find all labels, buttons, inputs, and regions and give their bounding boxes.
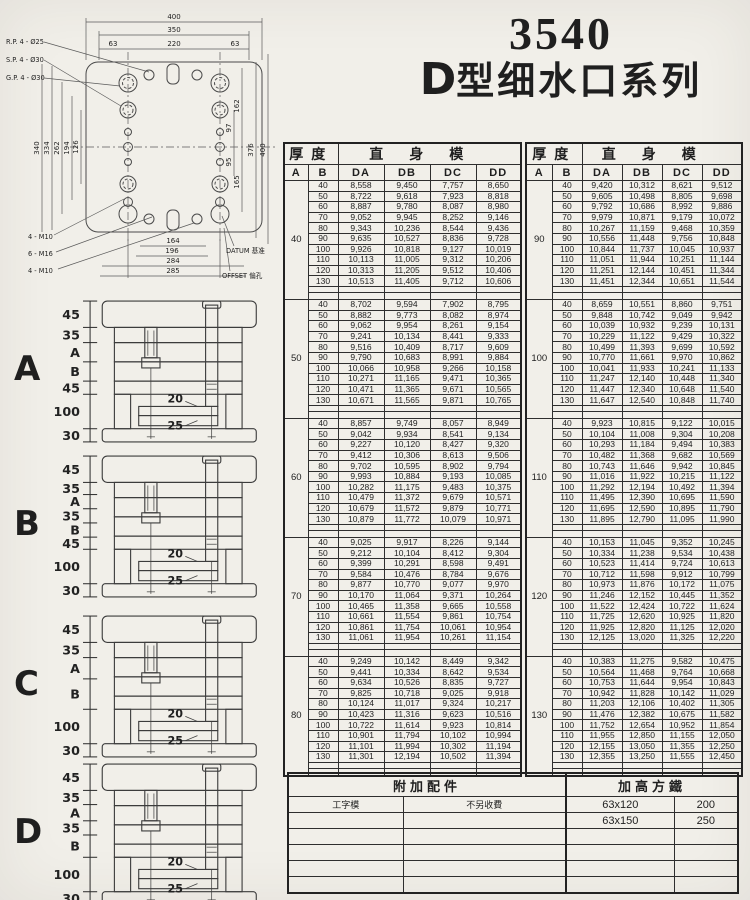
value-cell: 9,728 <box>476 233 521 244</box>
table-row: 10010,72211,6149,92310,814 <box>284 720 521 731</box>
dim-label: 194 <box>63 141 71 155</box>
value-cell: 9,790 <box>338 352 384 363</box>
stack-dim-label: 45 <box>62 380 80 395</box>
value-cell: 11,358 <box>384 601 430 612</box>
value-cell: 11,340 <box>702 374 742 385</box>
value-cell: 11,184 <box>622 440 662 451</box>
thickness-b-cell: 90 <box>308 352 338 363</box>
value-cell: 13,050 <box>622 741 662 752</box>
value-cell: 10,465 <box>338 601 384 612</box>
value-cell: 9,970 <box>662 352 702 363</box>
table-row: 9011,01611,92210,21511,122 <box>526 471 742 482</box>
value-cell: 10,015 <box>702 418 742 429</box>
accessories-row <box>288 877 738 894</box>
thickness-b-cell: 130 <box>552 633 582 644</box>
value-cell: 9,605 <box>582 191 622 202</box>
value-cell: 13,020 <box>622 633 662 644</box>
table-row: 13011,89512,79011,09511,990 <box>526 514 742 525</box>
table-row: 100408,65910,5518,8609,751 <box>526 299 742 310</box>
stack-dim-label: B <box>70 364 80 379</box>
value-cell: 9,429 <box>662 331 702 342</box>
table-row: 11011,49512,39010,69511,590 <box>526 493 742 504</box>
table-row: 508,8829,7738,0828,974 <box>284 310 521 321</box>
stack-dim-label: 45 <box>62 307 80 322</box>
value-cell: 10,406 <box>476 265 521 276</box>
table-row: 50408,7029,5947,9028,795 <box>284 299 521 310</box>
value-cell: 11,344 <box>702 265 742 276</box>
thickness-b-cell: 120 <box>308 741 338 752</box>
value-cell: 8,598 <box>430 559 476 570</box>
value-cell: 10,523 <box>582 559 622 570</box>
stack-dim-label: B <box>70 839 80 854</box>
value-cell: 10,261 <box>430 633 476 644</box>
thickness-b-cell: 70 <box>552 212 582 223</box>
thickness-b-cell: 70 <box>552 688 582 699</box>
value-cell: 9,825 <box>338 688 384 699</box>
value-cell: 11,565 <box>384 395 430 406</box>
value-cell: 10,771 <box>476 503 521 514</box>
value-cell: 11,944 <box>622 255 662 266</box>
thickness-b-cell: 90 <box>308 233 338 244</box>
thickness-b-cell: 80 <box>308 699 338 710</box>
value-cell: 12,344 <box>622 276 662 287</box>
stack-dim-label: A <box>70 661 80 676</box>
straight-mold-header: 直身模 <box>338 143 521 165</box>
series-title: D型细水口系列 <box>378 58 744 104</box>
thickness-b-cell: 80 <box>552 342 582 353</box>
thickness-b-cell: 110 <box>308 730 338 741</box>
empty-cell <box>566 845 674 861</box>
table-row: 709,82510,7189,0259,918 <box>284 688 521 699</box>
value-cell: 9,634 <box>338 677 384 688</box>
value-cell: 11,292 <box>582 482 622 493</box>
value-cell: 10,651 <box>662 276 702 287</box>
value-cell: 12,194 <box>384 752 430 763</box>
value-cell: 9,584 <box>338 569 384 580</box>
value-cell: 11,624 <box>702 601 742 612</box>
value-cell: 10,271 <box>338 374 384 385</box>
value-cell: 10,754 <box>476 611 521 622</box>
accessories-header: 附加配件 <box>288 773 566 797</box>
thickness-b-cell: 90 <box>552 233 582 244</box>
inner-dim-20: 20 <box>167 547 183 560</box>
inner-dim-25: 25 <box>167 883 182 896</box>
thickness-b-cell: 130 <box>552 395 582 406</box>
dim-label: 284 <box>166 257 180 265</box>
value-cell: 11,016 <box>582 471 622 482</box>
value-cell: 8,805 <box>662 191 702 202</box>
value-cell: 9,918 <box>476 688 521 699</box>
value-cell: 8,087 <box>430 202 476 213</box>
value-cell: 9,025 <box>430 688 476 699</box>
accessories-cell: 不另收費 <box>403 797 566 813</box>
col-header-dd: DD <box>476 165 521 181</box>
value-cell: 12,340 <box>622 384 662 395</box>
value-cell: 11,203 <box>582 699 622 710</box>
inner-dim-25: 25 <box>167 575 182 588</box>
thickness-a-cell: 60 <box>284 418 308 537</box>
value-cell: 9,712 <box>430 276 476 287</box>
value-cell: 10,932 <box>622 321 662 332</box>
value-cell: 11,854 <box>702 720 742 731</box>
value-cell: 11,695 <box>582 503 622 514</box>
value-cell: 9,077 <box>430 580 476 591</box>
value-cell: 12,820 <box>622 622 662 633</box>
value-cell: 11,772 <box>384 514 430 525</box>
value-cell: 10,267 <box>582 223 622 234</box>
thickness-header: 厚度 <box>284 143 338 165</box>
value-cell: 9,212 <box>338 548 384 559</box>
value-cell: 10,958 <box>384 363 430 374</box>
empty-cell <box>288 813 403 829</box>
thickness-b-cell: 80 <box>308 580 338 591</box>
value-cell: 9,304 <box>662 429 702 440</box>
value-cell: 10,079 <box>430 514 476 525</box>
value-cell: 10,527 <box>384 233 430 244</box>
value-cell: 8,412 <box>430 548 476 559</box>
value-cell: 12,382 <box>622 709 662 720</box>
stack-dim-label: 30 <box>62 583 80 598</box>
mold-elevation-section: B 4535A35B4510030 <box>8 452 280 604</box>
thickness-b-cell: 110 <box>308 611 338 622</box>
value-cell: 10,942 <box>582 688 622 699</box>
value-cell: 8,795 <box>476 299 521 310</box>
spec-table-right: 厚度 直身模 A B DA DB DC DD 90409,42010,3128,… <box>525 142 743 777</box>
table-row: 909,79010,6838,9919,884 <box>284 352 521 363</box>
mold-elevation-section: A 4535AB4510030 <box>8 297 280 449</box>
col-header-dc: DC <box>430 165 476 181</box>
value-cell: 10,613 <box>702 559 742 570</box>
value-cell: 11,582 <box>702 709 742 720</box>
value-cell: 10,845 <box>702 461 742 472</box>
table-row: 1204010,15311,0459,35210,245 <box>526 537 742 548</box>
value-cell: 11,468 <box>622 667 662 678</box>
value-cell: 10,592 <box>702 342 742 353</box>
value-cell: 9,945 <box>384 212 430 223</box>
value-cell: 8,613 <box>430 450 476 461</box>
thickness-b-cell: 40 <box>308 418 338 429</box>
value-cell: 11,876 <box>622 580 662 591</box>
value-cell: 10,039 <box>582 321 622 332</box>
value-cell: 11,895 <box>582 514 622 525</box>
dim-label: 165 <box>233 175 241 188</box>
value-cell: 8,252 <box>430 212 476 223</box>
thickness-b-cell: 40 <box>308 656 338 667</box>
thickness-b-cell: 60 <box>308 440 338 451</box>
value-cell: 10,208 <box>702 429 742 440</box>
table-row: 7010,94211,82810,14211,029 <box>526 688 742 699</box>
value-cell: 9,312 <box>430 255 476 266</box>
value-cell: 9,420 <box>582 181 622 192</box>
value-cell: 11,017 <box>384 699 430 710</box>
value-cell: 9,333 <box>476 331 521 342</box>
value-cell: 10,499 <box>582 342 622 353</box>
table-row: 509,44110,3348,6429,534 <box>284 667 521 678</box>
table-row: 13011,45112,34410,65111,544 <box>526 276 742 287</box>
riser-block-header: 加高方鐵 <box>566 773 738 797</box>
stack-dim-label: 35 <box>62 820 80 835</box>
table-row: 709,0529,9458,2529,146 <box>284 212 521 223</box>
value-cell: 11,737 <box>622 244 662 255</box>
thickness-b-cell: 70 <box>552 569 582 580</box>
value-cell: 9,702 <box>338 461 384 472</box>
stack-dim-label: 100 <box>54 867 81 882</box>
value-cell: 10,722 <box>662 601 702 612</box>
empty-cell <box>288 877 403 894</box>
table-row: 12010,31311,2059,51210,406 <box>284 265 521 276</box>
stack-dim-label: 35 <box>62 790 80 805</box>
value-cell: 10,861 <box>338 622 384 633</box>
value-cell: 10,423 <box>338 709 384 720</box>
value-cell: 10,683 <box>384 352 430 363</box>
thickness-b-cell: 60 <box>308 559 338 570</box>
value-cell: 10,569 <box>702 450 742 461</box>
value-cell: 11,061 <box>338 633 384 644</box>
table-row: 11011,72512,62010,92511,820 <box>526 611 742 622</box>
value-cell: 11,598 <box>622 569 662 580</box>
col-header-dc: DC <box>662 165 702 181</box>
thickness-b-cell: 80 <box>552 461 582 472</box>
stack-dim-label: 35 <box>62 508 80 523</box>
table-row: 508,7229,6187,9238,818 <box>284 191 521 202</box>
value-cell: 9,954 <box>662 677 702 688</box>
value-cell: 12,220 <box>702 633 742 644</box>
value-cell: 12,355 <box>582 752 622 763</box>
value-cell: 10,952 <box>662 720 702 731</box>
dim-label: 400 <box>167 13 180 21</box>
thickness-b-cell: 130 <box>552 276 582 287</box>
stack-dim-label: A <box>70 345 80 360</box>
value-cell: 10,229 <box>582 331 622 342</box>
dim-label: 262 <box>53 141 61 154</box>
value-cell: 11,451 <box>582 276 622 287</box>
value-cell: 8,226 <box>430 537 476 548</box>
value-cell: 10,884 <box>384 471 430 482</box>
value-cell: 10,102 <box>430 730 476 741</box>
table-row: 10010,04111,93310,24111,133 <box>526 363 742 374</box>
thickness-b-cell: 50 <box>552 429 582 440</box>
value-cell: 11,246 <box>582 590 622 601</box>
col-header-da: DA <box>338 165 384 181</box>
value-cell: 11,393 <box>622 342 662 353</box>
thickness-b-cell: 70 <box>308 331 338 342</box>
section-label: C <box>14 664 39 704</box>
value-cell: 9,780 <box>384 202 430 213</box>
value-cell: 8,642 <box>430 667 476 678</box>
value-cell: 8,659 <box>582 299 622 310</box>
stack-dim-label: 30 <box>62 428 80 443</box>
value-cell: 11,990 <box>702 514 742 525</box>
value-cell: 10,170 <box>338 590 384 601</box>
thickness-b-cell: 60 <box>552 321 582 332</box>
value-cell: 12,050 <box>702 730 742 741</box>
col-header-db: DB <box>622 165 662 181</box>
thickness-b-cell: 130 <box>552 514 582 525</box>
dim-label: 164 <box>166 237 180 245</box>
value-cell: 11,144 <box>702 255 742 266</box>
thickness-b-cell: 50 <box>552 667 582 678</box>
mold-elevation-section: D 4535A35B10030 <box>8 760 280 900</box>
accessories-row: 工字模不另收費63x120200 <box>288 797 738 813</box>
table-row: 11011,95512,85011,15512,050 <box>526 730 742 741</box>
accessories-cell: 250 <box>674 813 738 829</box>
col-header-a: A <box>526 165 552 181</box>
value-cell: 10,438 <box>702 548 742 559</box>
empty-cell <box>288 829 403 845</box>
table-row: 6010,03910,9329,23910,131 <box>526 321 742 332</box>
series-text: 型细水口系列 <box>456 61 702 103</box>
value-cell: 10,402 <box>662 699 702 710</box>
callout-label: OFFSET 偏孔 <box>222 271 263 280</box>
value-cell: 9,193 <box>430 471 476 482</box>
value-cell: 10,743 <box>582 461 622 472</box>
value-cell: 9,471 <box>430 374 476 385</box>
value-cell: 11,414 <box>622 559 662 570</box>
value-cell: 9,134 <box>476 429 521 440</box>
value-cell: 11,614 <box>384 720 430 731</box>
value-cell: 10,571 <box>476 493 521 504</box>
value-cell: 10,564 <box>582 667 622 678</box>
value-cell: 11,540 <box>702 384 742 395</box>
dim-label: 63 <box>231 40 240 48</box>
value-cell: 9,049 <box>662 310 702 321</box>
value-cell: 10,954 <box>476 622 521 633</box>
value-cell: 10,695 <box>662 493 702 504</box>
thickness-b-cell: 110 <box>552 730 582 741</box>
value-cell: 9,993 <box>338 471 384 482</box>
value-cell: 12,390 <box>622 493 662 504</box>
dim-label: 350 <box>167 26 180 34</box>
value-cell: 8,427 <box>430 440 476 451</box>
value-cell: 9,623 <box>430 709 476 720</box>
table-row: 12011,10111,99410,30211,194 <box>284 741 521 752</box>
thickness-b-cell: 50 <box>308 429 338 440</box>
accessories-cell: 工字模 <box>288 797 403 813</box>
value-cell: 9,483 <box>430 482 476 493</box>
value-cell: 10,448 <box>662 374 702 385</box>
thickness-a-cell: 100 <box>526 299 552 418</box>
value-cell: 10,153 <box>582 537 622 548</box>
value-cell: 9,954 <box>384 321 430 332</box>
table-row: 11010,11311,0059,31210,206 <box>284 255 521 266</box>
value-cell: 10,142 <box>384 656 430 667</box>
accessories-row <box>288 829 738 845</box>
value-cell: 9,942 <box>662 461 702 472</box>
value-cell: 11,790 <box>702 503 742 514</box>
value-cell: 9,879 <box>430 503 476 514</box>
table-row: 8010,97311,87610,17211,075 <box>526 580 742 591</box>
value-cell: 9,594 <box>384 299 430 310</box>
value-cell: 9,371 <box>430 590 476 601</box>
thickness-b-cell: 100 <box>308 720 338 731</box>
value-cell: 8,449 <box>430 656 476 667</box>
table-row: 7010,48211,3689,68210,569 <box>526 450 742 461</box>
value-cell: 10,879 <box>338 514 384 525</box>
empty-cell <box>674 845 738 861</box>
value-cell: 10,818 <box>384 244 430 255</box>
value-cell: 9,320 <box>476 440 521 451</box>
value-cell: 10,312 <box>622 181 662 192</box>
value-cell: 12,250 <box>702 741 742 752</box>
thickness-b-cell: 50 <box>308 548 338 559</box>
thickness-b-cell: 110 <box>308 493 338 504</box>
callout-label: 6 - M16 <box>28 250 53 258</box>
value-cell: 11,125 <box>662 622 702 633</box>
stack-dim-label: 35 <box>62 328 80 343</box>
value-cell: 9,912 <box>662 569 702 580</box>
value-cell: 11,405 <box>384 276 430 287</box>
value-cell: 9,794 <box>476 461 521 472</box>
value-cell: 11,555 <box>662 752 702 763</box>
value-cell: 12,424 <box>622 601 662 612</box>
value-cell: 9,512 <box>702 181 742 192</box>
value-cell: 11,820 <box>702 611 742 622</box>
value-cell: 10,215 <box>662 471 702 482</box>
value-cell: 9,886 <box>702 202 742 213</box>
value-cell: 9,468 <box>662 223 702 234</box>
value-cell: 11,572 <box>384 503 430 514</box>
value-cell: 9,792 <box>582 202 622 213</box>
value-cell: 11,752 <box>582 720 622 731</box>
thickness-b-cell: 60 <box>552 202 582 213</box>
thickness-b-cell: 90 <box>308 709 338 720</box>
value-cell: 9,877 <box>338 580 384 591</box>
value-cell: 10,526 <box>384 677 430 688</box>
thickness-a-cell: 120 <box>526 537 552 656</box>
table-row: 110409,92310,8159,12210,015 <box>526 418 742 429</box>
empty-cell <box>566 829 674 845</box>
thickness-b-cell: 80 <box>552 223 582 234</box>
value-cell: 10,172 <box>662 580 702 591</box>
value-cell: 9,324 <box>430 699 476 710</box>
value-cell: 10,264 <box>476 590 521 601</box>
value-cell: 10,862 <box>702 352 742 363</box>
value-cell: 10,104 <box>582 429 622 440</box>
table-row: 709,41210,3068,6139,506 <box>284 450 521 461</box>
value-cell: 11,925 <box>582 622 622 633</box>
table-row: 609,79210,6868,9929,886 <box>526 202 742 213</box>
thickness-b-cell: 110 <box>552 611 582 622</box>
value-cell: 8,818 <box>476 191 521 202</box>
table-row: 9010,77011,6619,97010,862 <box>526 352 742 363</box>
value-cell: 9,724 <box>662 559 702 570</box>
table-row: 509,0429,9348,5419,134 <box>284 429 521 440</box>
value-cell: 11,368 <box>622 450 662 461</box>
value-cell: 11,051 <box>582 255 622 266</box>
value-cell: 9,773 <box>384 310 430 321</box>
accessories-cell: 63x150 <box>566 813 674 829</box>
table-row: 11010,90111,79410,10210,994 <box>284 730 521 741</box>
table-row: 12012,15513,05011,35512,250 <box>526 741 742 752</box>
thickness-a-cell: 50 <box>284 299 308 418</box>
value-cell: 10,383 <box>702 440 742 451</box>
value-cell: 9,412 <box>338 450 384 461</box>
value-cell: 12,155 <box>582 741 622 752</box>
table-row: 10011,75212,65410,95211,854 <box>526 720 742 731</box>
table-row: 13010,87911,77210,07910,971 <box>284 514 521 525</box>
thickness-b-cell: 40 <box>308 181 338 192</box>
empty-cell <box>566 861 674 877</box>
thickness-b-cell: 50 <box>552 191 582 202</box>
value-cell: 8,835 <box>430 677 476 688</box>
value-cell: 11,238 <box>622 548 662 559</box>
value-cell: 8,441 <box>430 331 476 342</box>
value-cell: 11,365 <box>384 384 430 395</box>
value-cell: 8,722 <box>338 191 384 202</box>
value-cell: 8,717 <box>430 342 476 353</box>
dim-label: 63 <box>109 40 118 48</box>
value-cell: 9,239 <box>662 321 702 332</box>
